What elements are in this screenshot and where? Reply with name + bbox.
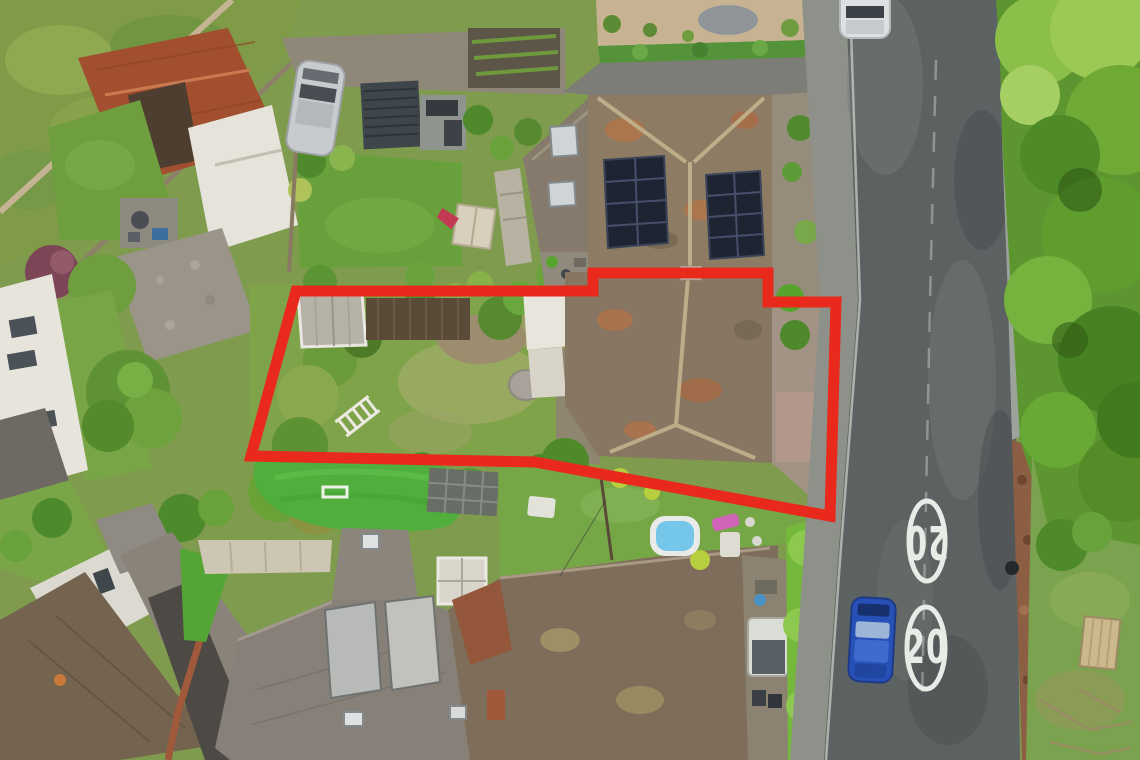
paddling-pool <box>656 521 694 551</box>
patio-furniture <box>120 198 178 248</box>
front-garden <box>563 0 814 95</box>
solar-panel-array-right <box>706 171 764 259</box>
chimney <box>487 690 505 720</box>
paver-patio <box>427 468 500 517</box>
garden-table <box>527 496 556 519</box>
dormer-roof <box>385 596 440 690</box>
caravan-cover <box>752 640 785 674</box>
picnic-table <box>1079 616 1120 669</box>
gravel-pile <box>698 5 758 35</box>
skylight <box>344 712 363 726</box>
skylight <box>550 125 578 157</box>
solar-panel-array-left <box>604 156 668 248</box>
garden-table <box>720 532 740 557</box>
aerial-photo: Aerial drone photograph of a residential… <box>0 0 1140 760</box>
shrub <box>463 105 493 135</box>
bin-on-verge <box>1005 561 1019 575</box>
garden-sofa <box>426 100 458 116</box>
speed-limit-text: 20 <box>905 514 949 567</box>
blue-car <box>848 597 896 683</box>
side-yard <box>742 555 790 760</box>
bin <box>752 690 766 706</box>
pergola <box>360 80 421 149</box>
white-car <box>840 0 890 38</box>
dormer-roof <box>325 602 381 698</box>
skylight <box>362 534 379 549</box>
plant <box>780 320 810 350</box>
bin <box>768 694 782 708</box>
skylight <box>548 181 576 207</box>
dark-wood-fence <box>366 298 470 340</box>
speed-limit-text: 20 <box>904 621 948 674</box>
garden-outbuilding <box>298 293 366 347</box>
rear-roof <box>565 272 772 463</box>
skylight <box>450 706 466 719</box>
